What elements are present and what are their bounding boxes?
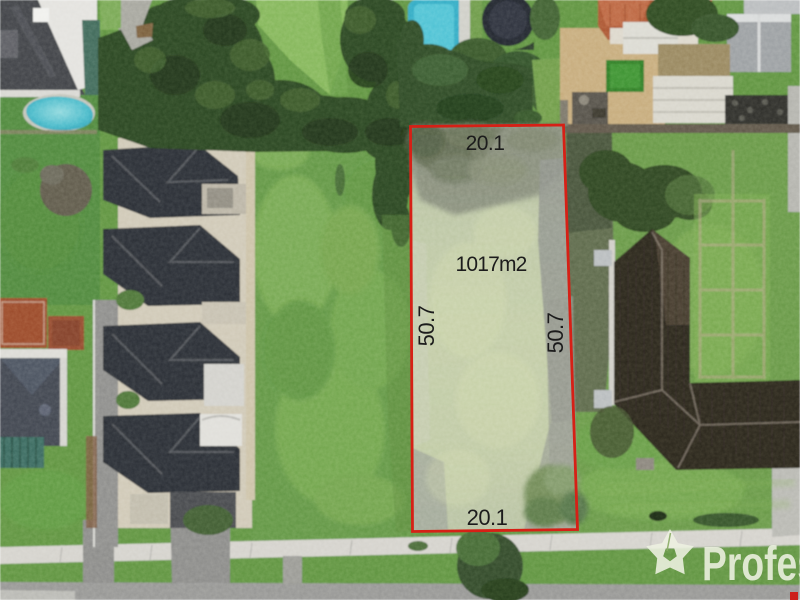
svg-text:20.1: 20.1 <box>466 132 505 155</box>
svg-text:20.1: 20.1 <box>467 505 508 530</box>
svg-text:1017m2: 1017m2 <box>455 253 526 276</box>
svg-text:50.7: 50.7 <box>414 305 439 346</box>
svg-text:50.7: 50.7 <box>543 312 568 353</box>
svg-text:Profes: Profes <box>702 538 800 591</box>
